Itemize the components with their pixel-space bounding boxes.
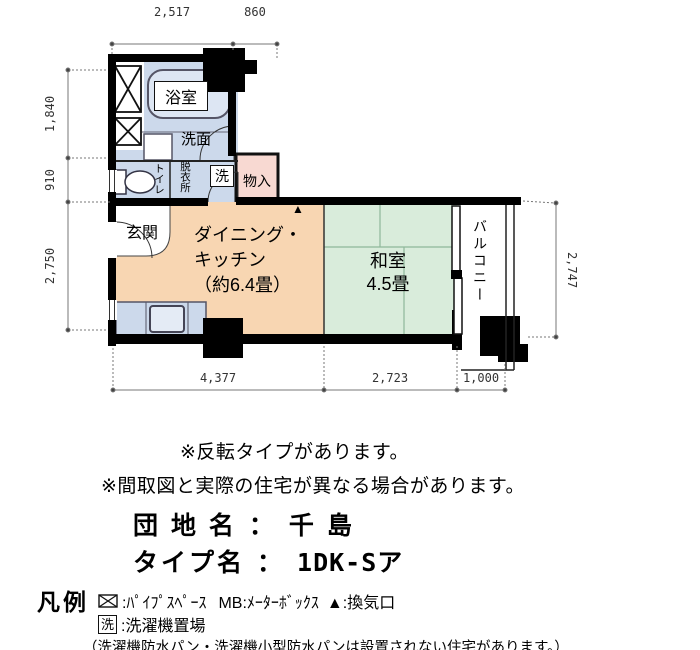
floorplan-drawing: [0, 0, 700, 420]
dk-line-1: ダイニング・: [194, 223, 302, 248]
dk-line-2: キッチン: [194, 248, 302, 273]
note-plan-differs: ※間取図と実際の住宅が異なる場合があります。: [101, 471, 525, 498]
dim-top-1: 2,517: [140, 5, 204, 19]
type-name-label: タイプ名: [133, 543, 245, 579]
pipe-space-icon: [115, 66, 141, 145]
legend-note: （洗濯機防水パン・洗濯機小型防水パンは設置されない住宅があります。）: [83, 636, 569, 650]
legend-vent: ▲:換気口: [327, 589, 395, 613]
dim-left-3: 2,750: [43, 241, 57, 291]
estate-name-value: 千 島: [289, 506, 355, 542]
estate-name-row: 団 地 名 ： 千 島: [133, 506, 355, 542]
legend-meter-box: MB:ﾒｰﾀｰﾎﾞｯｸｽ: [218, 589, 318, 613]
vent-marker: ▲: [292, 202, 304, 216]
toilet-icon: [114, 170, 155, 194]
room-label-dk: ダイニング・ キッチン （約6.4畳）: [194, 223, 302, 298]
vanity-icon: [144, 134, 172, 160]
type-name-value: 1DK-Sア: [297, 543, 403, 579]
estate-name-label: 団 地 名: [133, 506, 237, 542]
room-label-washitsu: 和室 4.5畳: [348, 250, 428, 296]
room-label-storage: 物入: [238, 171, 276, 191]
dim-bottom-2: 2,723: [358, 371, 422, 385]
washitsu-line-1: 和室: [348, 250, 428, 273]
floorplan-page: 2,517 860 1,840 910 2,750 2,747 4,377 2,…: [0, 0, 700, 650]
legend-row-1: :ﾊﾟｲﾌﾟｽﾍﾟｰｽ MB:ﾒｰﾀｰﾎﾞｯｸｽ ▲:換気口: [98, 589, 395, 613]
dim-bottom-3: 1,000: [449, 371, 513, 385]
note-reversed-type: ※反転タイプがあります。: [180, 437, 409, 464]
dim-left-1: 1,840: [43, 89, 57, 139]
dim-right-1: 2,747: [565, 245, 579, 295]
type-name-row: タイプ名 ： 1DK-Sア: [133, 543, 403, 579]
dim-bottom-1: 4,377: [186, 371, 250, 385]
legend-pipe-space: :ﾊﾟｲﾌﾟｽﾍﾟｰｽ: [122, 589, 206, 613]
legend-laundry-mark: 洗: [98, 615, 117, 634]
room-label-entrance: 玄関: [119, 219, 165, 243]
legend-laundry: :洗濯機置場: [121, 612, 205, 636]
dim-top-2: 860: [233, 5, 277, 19]
dim-left-2: 910: [43, 155, 57, 205]
legend-row-2: 洗 :洗濯機置場: [98, 612, 205, 636]
room-label-dressing: 脱衣所: [178, 161, 193, 193]
room-label-toilet: トイレ: [152, 163, 167, 195]
dk-line-3: （約6.4畳）: [194, 273, 302, 298]
room-label-washroom: 洗面: [172, 128, 220, 149]
kitchen-counter-icon: [116, 302, 206, 338]
washitsu-line-2: 4.5畳: [348, 273, 428, 296]
room-label-balcony: バルコニー: [470, 219, 490, 304]
sliding-door-panel: [454, 278, 462, 334]
type-name-separator: ：: [257, 543, 285, 579]
estate-name-separator: ：: [249, 506, 277, 542]
pipe-space-icon: [98, 594, 118, 608]
sliding-door-panel: [452, 206, 460, 274]
laundry-pan-mark: 洗: [210, 165, 234, 187]
room-label-bath: 浴室: [154, 81, 208, 111]
legend-heading: 凡例: [37, 583, 89, 617]
